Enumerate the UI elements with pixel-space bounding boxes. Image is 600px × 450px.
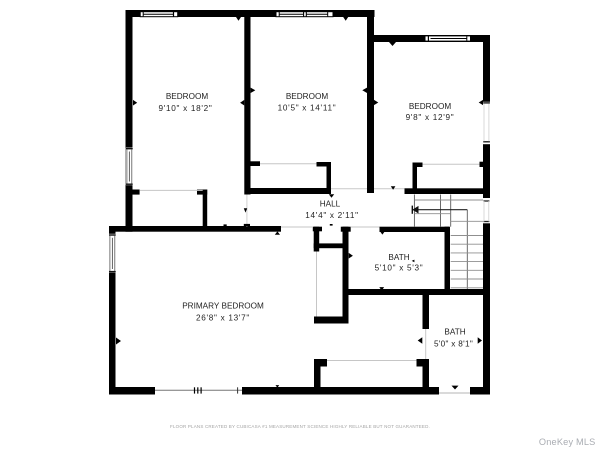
svg-text:26'8" x 13'7": 26'8" x 13'7" bbox=[196, 314, 250, 323]
svg-text:BATH: BATH bbox=[444, 328, 465, 337]
svg-text:PRIMARY BEDROOM: PRIMARY BEDROOM bbox=[182, 302, 264, 311]
svg-text:OneKey MLS: OneKey MLS bbox=[539, 437, 596, 447]
svg-text:14'4" x 2'11": 14'4" x 2'11" bbox=[305, 211, 358, 220]
svg-text:FLOOR PLANS CREATED BY CUBICAS: FLOOR PLANS CREATED BY CUBICASA #1 MEASU… bbox=[170, 424, 430, 429]
svg-text:BEDROOM: BEDROOM bbox=[409, 102, 451, 111]
svg-text:5'0" x 8'1": 5'0" x 8'1" bbox=[434, 340, 473, 349]
svg-text:5'10" x 5'3": 5'10" x 5'3" bbox=[375, 264, 424, 273]
svg-text:9'10" x 18'2": 9'10" x 18'2" bbox=[158, 104, 212, 113]
svg-text:HALL: HALL bbox=[320, 200, 341, 209]
svg-text:10'5" x 14'11": 10'5" x 14'11" bbox=[278, 104, 337, 113]
svg-text:BEDROOM: BEDROOM bbox=[166, 92, 208, 101]
svg-text:BATH: BATH bbox=[388, 253, 409, 262]
svg-text:BEDROOM: BEDROOM bbox=[286, 92, 328, 101]
svg-text:9'8" x 12'9": 9'8" x 12'9" bbox=[406, 113, 455, 122]
